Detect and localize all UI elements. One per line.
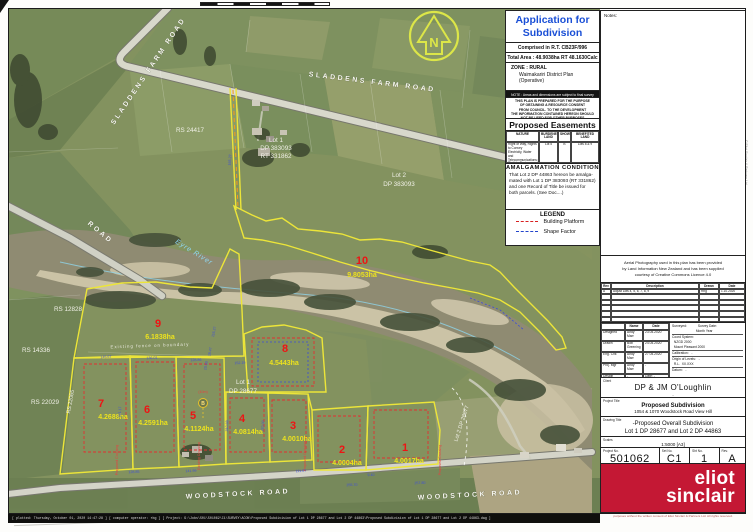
legend-item-shape-factor: Shape Factor xyxy=(506,228,599,238)
lot-9-area: 6.1838ha xyxy=(145,334,175,341)
parcel-label: DP 383093 xyxy=(260,145,292,152)
drawing-title-label: Drawing Title xyxy=(603,418,621,422)
dimension: 9.40 xyxy=(367,473,374,477)
lot-8-number: 8 xyxy=(282,343,288,355)
personnel-cell-r1c1: Andy Marr xyxy=(625,330,643,341)
crossing-note: Existing Crossing xyxy=(197,442,201,470)
survey-info: Surveyed: Survey Date: Month Year Coord … xyxy=(669,323,745,377)
revision-table: RevDescriptionDrawnDateAAdjust Lots 4, 5… xyxy=(600,282,746,323)
lot-10-area: 9.8053ha xyxy=(347,272,377,279)
dimension: 270.00 xyxy=(261,420,266,431)
dimension: 141.99 xyxy=(185,469,196,474)
amalgamation-line: both parcels. (See Doc....) xyxy=(509,190,596,196)
lot-6-area: 4.2591ha xyxy=(138,420,168,427)
easement-b-label: B xyxy=(201,401,205,407)
rev-cell: Rev. A xyxy=(720,448,745,463)
lot-2-number: 2 xyxy=(339,444,345,456)
project-no-cell: Project No. 501062 xyxy=(601,448,660,463)
amalgamation-box: AMALGAMATION CONDITION That Lot 2 DP 448… xyxy=(505,163,600,210)
personnel-cell-r4c0: Proj. Mgr xyxy=(601,363,625,374)
aerial-note-line: by Land Information New Zealand and has … xyxy=(601,266,745,272)
easement-cell-r1c3: Lots 8 & 9 xyxy=(571,142,599,163)
dimension: 111.07 xyxy=(296,469,307,474)
personnel-cell-r3c2: 27.04.2020 xyxy=(643,352,669,363)
north-arrow-n: N xyxy=(429,35,438,50)
client-name: DP & JM O'Loughlin xyxy=(601,383,745,392)
lot-2-area: 4.0004ha xyxy=(332,460,362,467)
dimension: 311.17 xyxy=(118,406,123,417)
project-title-label: Project Title xyxy=(603,399,620,403)
project-title-box: Project Title Proposed Subdivision 1054 … xyxy=(600,397,746,417)
crossing-note: Proposed Crossing xyxy=(438,445,442,476)
lot-10-number: 10 xyxy=(356,255,368,267)
sheet-no-cell: Sht No. 1 xyxy=(690,448,719,463)
dimension: 128.86 xyxy=(190,358,201,363)
set-no-label: Set No. xyxy=(662,449,673,453)
zone-line3: (Operative) xyxy=(511,78,599,84)
disclaimer-line: OF OBTAINING A RESOURCE CONSENT xyxy=(506,103,599,107)
side-margin-text: © Eliot Sinclair & Partners Ltd xyxy=(744,140,748,185)
lot-1-area: 4.0017ha xyxy=(394,458,424,465)
lot-7-area: 4.2688ha xyxy=(98,414,128,421)
parcel-label: DP 383093 xyxy=(383,181,415,188)
drawing-title-line2: Lot 1 DP 28677 and Lot 2 DP 44863 xyxy=(601,429,745,437)
legend-label: Shape Factor xyxy=(544,229,576,235)
personnel-cell-r0c2: Date xyxy=(643,323,669,330)
personnel-cell-r3c1: Andy Marr xyxy=(625,352,643,363)
scale-bar xyxy=(200,2,330,6)
consent-title-line1: Application for xyxy=(515,14,589,26)
lot-3-number: 3 xyxy=(290,420,296,432)
personnel-box: NameDateDesignedAndy Marr23.04.2020Drawn… xyxy=(600,322,746,378)
personnel-cell-r1c2: 23.04.2020 xyxy=(643,330,669,341)
parcel-label: RT 331862 xyxy=(261,153,292,160)
aerial-note-box: Aerial Photography used in this plan has… xyxy=(600,255,746,283)
lot-8-area: 4.5443ha xyxy=(269,360,299,367)
lot-7-number: 7 xyxy=(98,398,104,410)
legend-item-building-platform: Building Platform xyxy=(506,218,599,228)
aerial-note-line: courtesy of Creative Commons Licence 4.0 xyxy=(601,272,745,278)
dimension: 145.67 xyxy=(100,355,111,360)
plot-info-text: [ plotted: Thursday, October 01, 2020 14… xyxy=(12,516,491,520)
lot-5-number: 5 xyxy=(190,410,196,422)
plot-info-strip: [ plotted: Thursday, October 01, 2020 14… xyxy=(8,513,600,523)
easement-cell-r0c2: SHOWN xyxy=(558,131,571,142)
dimension: 257.80 xyxy=(414,481,425,485)
project-title-line2: 1054 & 1070 Woodstock Road View Hill xyxy=(601,409,745,414)
dimension: 136.01 xyxy=(146,356,157,361)
sheet-no-label: Sht No. xyxy=(692,449,703,453)
legend-label: Building Platform xyxy=(544,219,585,225)
personnel-cell-r0c1: Name xyxy=(625,323,643,330)
lot-3-area: 4.0010ha xyxy=(282,436,312,443)
parcel-label: RS 22029 xyxy=(31,399,60,406)
crossing-note: Proposed Crossing xyxy=(115,445,119,476)
personnel-cell-r3c0: Eng. Chk xyxy=(601,352,625,363)
dimension: 310.68 xyxy=(225,420,230,431)
disclaimer-box: THIS PLAN IS PREPARED FOR THE PURPOSE OF… xyxy=(505,97,600,119)
drawing-title-box: Drawing Title -Proposed Overall Subdivis… xyxy=(600,416,746,437)
set-no-cell: Set No. C1 xyxy=(660,448,690,463)
personnel-cell-r1c0: Designed xyxy=(601,330,625,341)
personnel-cell-r2c0: Drawn xyxy=(601,341,625,352)
rev-label: Rev. xyxy=(722,449,728,453)
parcel-label: RS 12828 xyxy=(54,306,83,313)
dimension: 128.85 xyxy=(128,470,139,475)
parcel-label: Lot 1 xyxy=(236,379,251,386)
parcel-label: RS 14336 xyxy=(22,347,51,354)
lot-5-area: 4.1124ha xyxy=(184,426,213,433)
personnel-cell-r4c2: - xyxy=(643,363,669,374)
project-no-label: Project No. xyxy=(603,449,619,453)
shape-factor-swatch xyxy=(516,231,538,232)
personnel-cell-r0c0 xyxy=(601,323,625,330)
lot-9-number: 9 xyxy=(155,318,161,330)
parcel-label: Lot 2 xyxy=(392,172,407,179)
subdivision-plan-sheet: B N SLADDENS FARM ROADSLADDENS FARM ROAD… xyxy=(0,0,753,532)
personnel-cell-r4c1: Andy Marr xyxy=(625,363,643,374)
easement-cell-r1c0: Right of Way, Rights to Convey Electrici… xyxy=(506,142,539,163)
dimension: 165.27 xyxy=(228,154,233,165)
lot-4-area: 4.0814ha xyxy=(233,429,263,436)
notes-label: Notes: xyxy=(601,11,745,18)
personnel-cell-r2c1: Bob Greening xyxy=(625,341,643,352)
lot-1-number: 1 xyxy=(402,442,408,454)
client-label: Client xyxy=(603,379,611,383)
zone-box: ZONE : RURAL Waimakariri District Plan (… xyxy=(505,62,600,91)
survey-line: Datum: - xyxy=(672,367,743,373)
dimension: 255.70 xyxy=(346,483,357,487)
easement-cell-r0c0: NATURE xyxy=(506,131,539,142)
easement-cell-r0c1: BURDENED LAND xyxy=(539,131,558,142)
eliot-sinclair-logo: eliot sinclair xyxy=(600,463,746,513)
copyright-line: purposes without the written consent of … xyxy=(600,514,746,518)
easement-cell-r1c2: B xyxy=(558,142,571,163)
easement-width-note: (10m) xyxy=(198,390,207,394)
drawing-title-line1: -Proposed Overall Subdivision xyxy=(601,421,745,429)
logo-line2: sinclair xyxy=(601,488,735,506)
parcel-label: Lot 1 xyxy=(269,137,284,144)
lot-4-number: 4 xyxy=(239,413,246,425)
building-platform-swatch xyxy=(516,221,538,222)
client-box: Client DP & JM O'Loughlin - xyxy=(600,377,746,398)
notes-box: Notes: xyxy=(600,10,746,256)
lot-6-number: 6 xyxy=(144,404,150,416)
scan-corner-artifact xyxy=(0,0,9,13)
dimension: 152.19 xyxy=(234,361,245,366)
easements-table: NATUREBURDENED LANDSHOWNBENEFITED LANDRi… xyxy=(505,130,600,164)
easement-cell-r0c3: BENEFITED LAND xyxy=(571,131,599,142)
crossing-note: Proposed Crossing xyxy=(303,441,307,472)
legend-box: LEGEND Building Platform Shape Factor xyxy=(505,209,600,246)
amalgamation-title: AMALGAMATION CONDITION xyxy=(506,165,599,171)
parcel-label: DP 28677 xyxy=(229,388,257,395)
easement-cell-r1c1: Lot 5 xyxy=(539,142,558,163)
personnel-cell-r2c2: 24.04.2020 xyxy=(643,341,669,352)
parcel-label: RS 24417 xyxy=(176,127,205,134)
numbers-row: Project No. 501062 Set No. C1 Sht No. 1 … xyxy=(600,447,746,464)
scales-label: Scales xyxy=(603,438,613,442)
consent-title-box: Application for Subdivision Consent xyxy=(505,10,600,43)
